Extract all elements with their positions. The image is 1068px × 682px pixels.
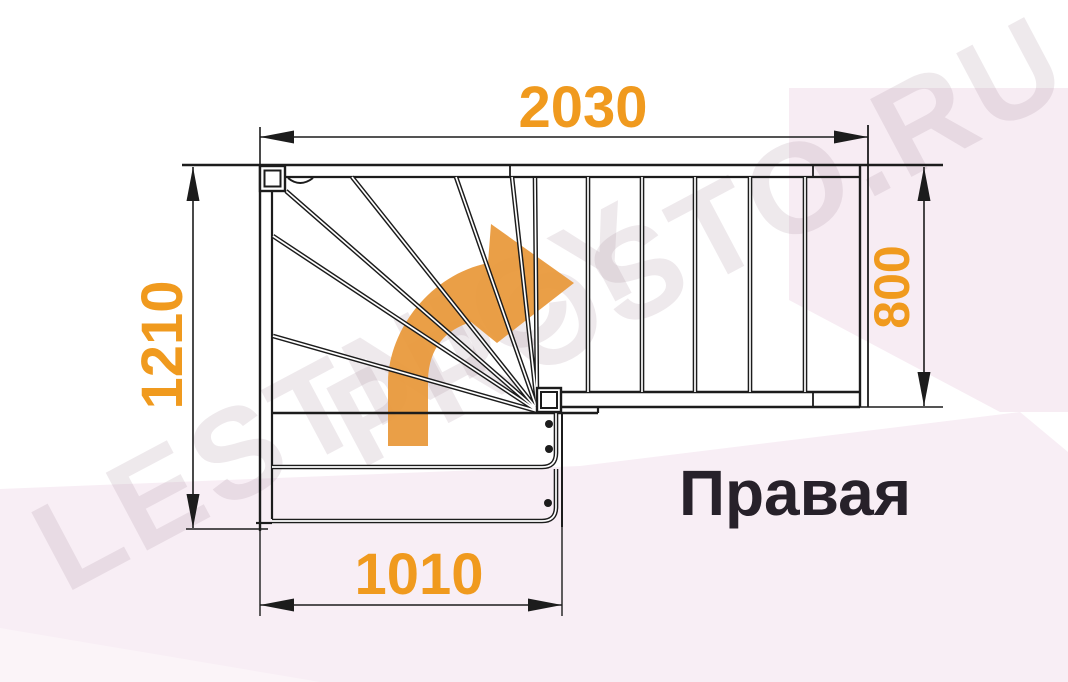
upper-flight-treads bbox=[588, 177, 805, 392]
dimension-label-left-height: 1210 bbox=[134, 280, 192, 409]
corner-newel-post bbox=[260, 166, 285, 191]
dimension-label-right-depth: 800 bbox=[867, 245, 917, 328]
orientation-title: Правая bbox=[679, 461, 911, 525]
staircase-drawing-page: { "dimensions": { "top_width_mm": "2030"… bbox=[0, 0, 1068, 682]
center-newel-post bbox=[537, 388, 561, 412]
dimension-label-bottom-width: 1010 bbox=[354, 546, 483, 604]
dimension-label-top-width: 2030 bbox=[518, 79, 647, 137]
